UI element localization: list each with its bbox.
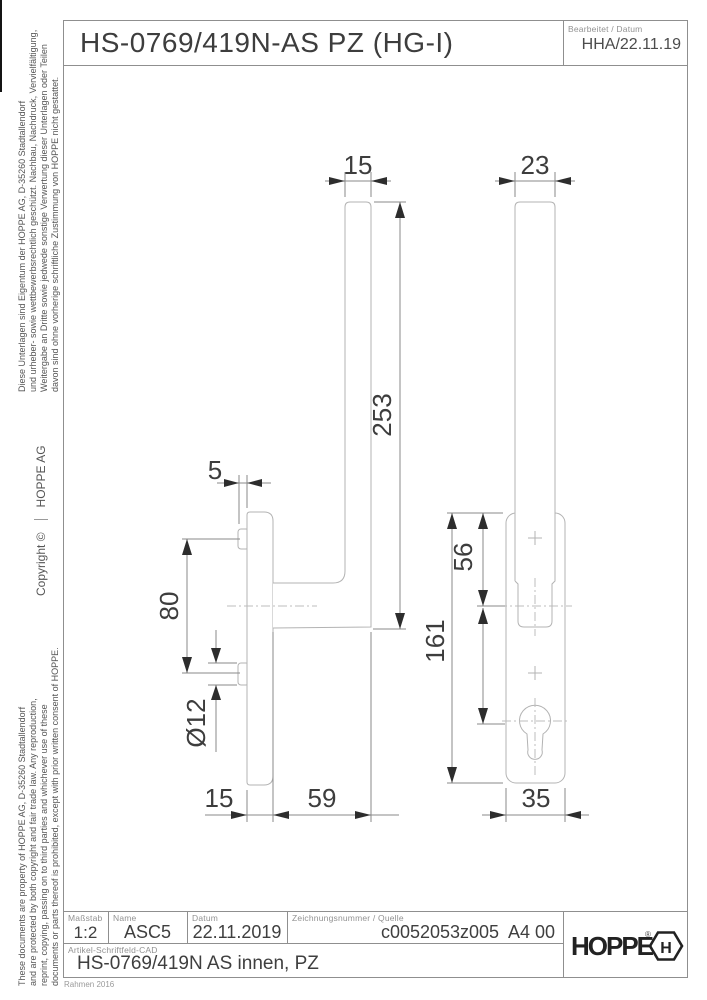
titleblock-row-rule	[63, 943, 563, 944]
arrowhead	[478, 513, 488, 529]
arrowhead	[478, 608, 488, 624]
dim-grip-width-front: 23	[495, 150, 575, 197]
arrowhead	[224, 479, 239, 487]
date-value: 22.11.2019	[187, 922, 287, 943]
handle-side-profile	[273, 202, 371, 628]
dim-text: Ø12	[181, 698, 211, 747]
arrowhead	[211, 685, 221, 700]
dim-text: 5	[208, 455, 222, 485]
registered-mark-icon: ®	[645, 930, 651, 939]
backplate-side-profile	[247, 512, 273, 785]
dim-text: 23	[521, 150, 550, 180]
arrowhead	[565, 811, 581, 819]
arrowhead	[273, 811, 289, 819]
frame-version-note: Rahmen 2016	[64, 980, 114, 989]
dim-text: 161	[420, 619, 450, 662]
arrowhead	[395, 613, 405, 629]
arrowhead	[490, 811, 506, 819]
dim-text: 59	[308, 783, 337, 813]
arrowhead	[499, 177, 515, 185]
arrowhead	[447, 513, 457, 529]
arrowhead	[182, 539, 192, 555]
arrowhead	[395, 202, 405, 218]
dim-text: 15	[344, 150, 373, 180]
dim-plate-depth-and-projection: 15 59	[205, 632, 399, 822]
scale-value: 1:2	[63, 923, 108, 943]
article-value: HS-0769/419N AS innen, PZ	[77, 953, 319, 975]
dim-text: 253	[367, 393, 397, 436]
titleblock-divider	[287, 911, 288, 943]
technical-drawing: 15 23 253 5 80 Ø12 15 59	[0, 0, 707, 1000]
arrowhead	[555, 177, 571, 185]
dim-text: 80	[154, 592, 184, 621]
dim-total-length: 253	[367, 202, 406, 629]
dim-plate-width: 35	[482, 783, 589, 822]
dim-axis-to-cylinder	[477, 608, 505, 724]
hexagon-letter: H	[660, 940, 672, 957]
arrowhead	[447, 767, 457, 783]
hoppe-logo: HOPPE ® H	[563, 911, 687, 977]
arrowhead	[211, 648, 221, 663]
arrowhead	[355, 811, 371, 819]
format-value: A4 00	[495, 922, 555, 943]
arrowhead	[371, 177, 387, 185]
arrowhead	[478, 708, 488, 724]
logo-wordmark: HOPPE	[571, 931, 654, 961]
front-view	[498, 202, 572, 783]
dim-boss-diameter: Ø12	[181, 630, 237, 752]
name-value: ASC5	[108, 922, 187, 943]
dim-grip-width-side: 15	[325, 150, 391, 197]
handle-front	[515, 202, 555, 627]
dim-text: 15	[205, 783, 234, 813]
arrowhead	[478, 590, 488, 606]
arrowhead	[182, 657, 192, 673]
dim-text: 56	[448, 543, 478, 572]
side-view	[227, 202, 371, 785]
dim-axis-offset: 56	[448, 513, 505, 606]
scale-label: Maßstab	[68, 913, 102, 923]
dim-text: 35	[522, 783, 551, 813]
arrowhead	[247, 479, 262, 487]
